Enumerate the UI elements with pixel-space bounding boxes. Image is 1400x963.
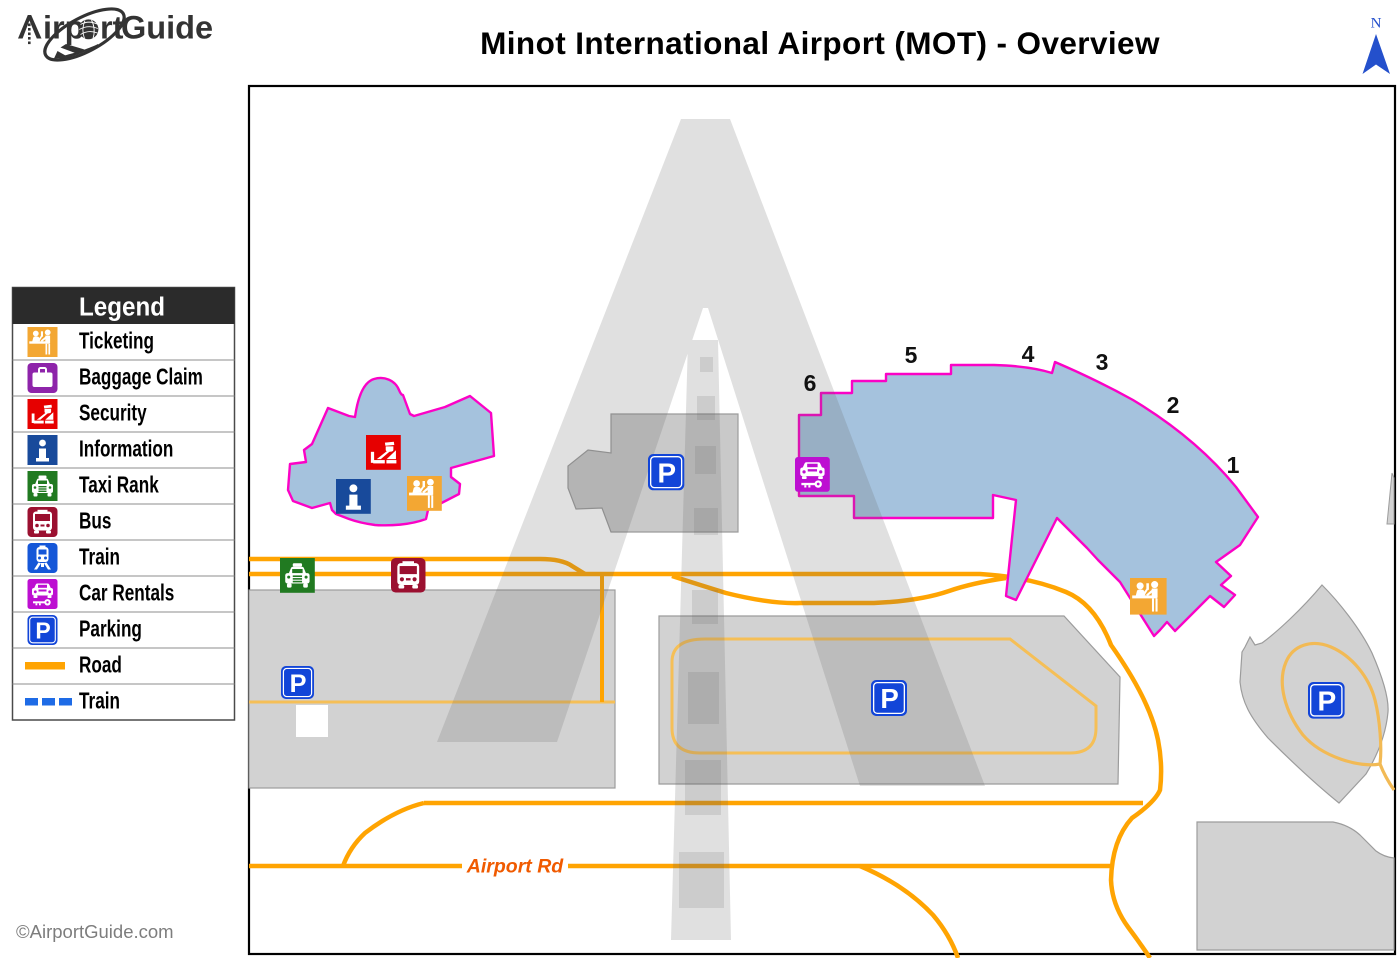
svg-text:Road: Road (79, 652, 122, 678)
svg-text:Guide: Guide (121, 10, 213, 46)
svg-text:Airport Rd: Airport Rd (466, 856, 564, 878)
svg-text:Train: Train (79, 688, 120, 714)
svg-text:Ticketing: Ticketing (79, 328, 154, 354)
svg-text:Legend: Legend (79, 293, 165, 322)
svg-text:Parking: Parking (79, 616, 142, 642)
svg-text:Taxi Rank: Taxi Rank (79, 472, 159, 498)
svg-text:3: 3 (1096, 349, 1109, 375)
svg-text:6: 6 (804, 370, 817, 396)
svg-text:5: 5 (905, 342, 918, 368)
svg-text:Bus: Bus (79, 508, 111, 534)
svg-text:2: 2 (1167, 392, 1180, 418)
svg-text:Security: Security (79, 400, 147, 426)
svg-text:©AirportGuide.com: ©AirportGuide.com (16, 921, 174, 942)
svg-text:1: 1 (1227, 452, 1240, 478)
svg-text:Information: Information (79, 436, 173, 462)
svg-text:Train: Train (79, 544, 120, 570)
svg-text:4: 4 (1022, 341, 1035, 367)
svg-text:Baggage Claim: Baggage Claim (79, 364, 203, 390)
svg-text:Minot International Airport (M: Minot International Airport (MOT) - Over… (480, 25, 1160, 61)
svg-text:Car Rentals: Car Rentals (79, 580, 174, 606)
svg-text:N: N (1371, 16, 1382, 32)
